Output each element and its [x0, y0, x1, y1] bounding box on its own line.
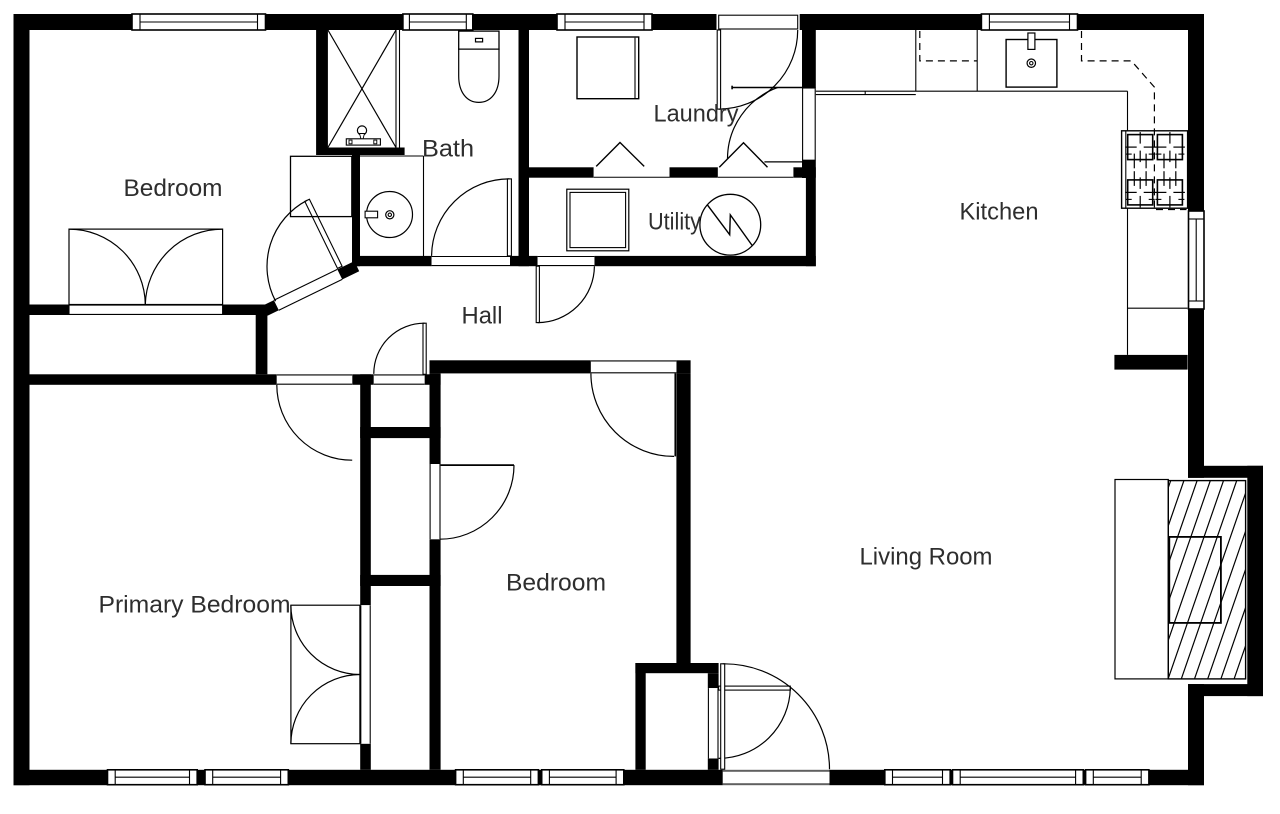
svg-text:Living Room: Living Room [860, 544, 993, 571]
svg-text:Hall: Hall [462, 303, 503, 330]
svg-text:Utility: Utility [648, 209, 701, 236]
svg-text:Bath: Bath [422, 136, 474, 163]
svg-text:Primary Bedroom: Primary Bedroom [99, 592, 291, 619]
svg-text:Laundry: Laundry [654, 101, 739, 128]
svg-text:Bedroom: Bedroom [124, 175, 223, 202]
svg-text:Kitchen: Kitchen [960, 199, 1039, 226]
svg-text:Bedroom: Bedroom [506, 570, 606, 597]
